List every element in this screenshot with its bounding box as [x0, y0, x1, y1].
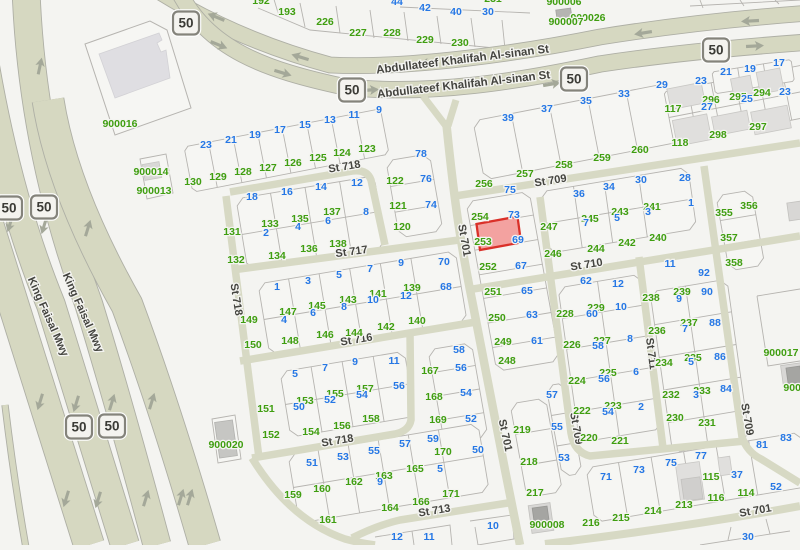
svg-text:30: 30 [482, 6, 494, 18]
svg-text:21: 21 [225, 134, 237, 146]
svg-text:900020: 900020 [208, 439, 243, 451]
svg-text:115: 115 [703, 471, 720, 483]
svg-text:50: 50 [566, 72, 581, 87]
svg-text:53: 53 [558, 452, 570, 464]
svg-text:21: 21 [720, 66, 732, 78]
svg-text:81: 81 [756, 439, 768, 451]
svg-text:16: 16 [281, 186, 293, 198]
svg-text:258: 258 [555, 159, 573, 171]
svg-text:150: 150 [244, 339, 262, 351]
svg-text:142: 142 [377, 321, 395, 333]
svg-text:6: 6 [633, 366, 639, 378]
svg-text:116: 116 [708, 492, 725, 504]
svg-text:217: 217 [526, 487, 544, 499]
svg-text:248: 248 [498, 355, 516, 367]
svg-text:58: 58 [453, 344, 465, 356]
svg-text:260: 260 [631, 144, 649, 156]
svg-text:3: 3 [645, 206, 651, 218]
svg-text:11: 11 [348, 109, 359, 121]
svg-text:77: 77 [695, 450, 707, 462]
svg-text:259: 259 [593, 152, 611, 164]
svg-text:62: 62 [580, 275, 592, 287]
svg-text:121: 121 [389, 200, 407, 212]
svg-text:12: 12 [351, 177, 363, 189]
svg-text:67: 67 [515, 260, 527, 272]
svg-text:238: 238 [642, 292, 660, 304]
svg-text:4: 4 [295, 221, 301, 233]
svg-text:120: 120 [393, 221, 411, 233]
svg-text:242: 242 [618, 237, 636, 249]
svg-text:74: 74 [425, 199, 437, 211]
svg-text:86: 86 [714, 351, 726, 363]
svg-text:55: 55 [551, 421, 563, 433]
svg-text:229: 229 [416, 34, 434, 46]
svg-text:50: 50 [104, 419, 119, 434]
svg-text:57: 57 [399, 438, 411, 450]
svg-text:10: 10 [615, 301, 627, 313]
svg-text:161: 161 [319, 514, 337, 526]
svg-text:130: 130 [184, 176, 202, 188]
svg-text:92: 92 [698, 267, 710, 279]
svg-text:39: 39 [502, 112, 514, 124]
svg-text:50: 50 [708, 43, 723, 58]
svg-text:7: 7 [322, 362, 328, 374]
svg-text:9: 9 [676, 293, 682, 305]
svg-text:128: 128 [234, 166, 252, 178]
svg-text:118: 118 [672, 137, 689, 149]
svg-text:19: 19 [744, 63, 756, 75]
svg-text:3: 3 [693, 389, 699, 401]
svg-text:252: 252 [479, 261, 497, 273]
svg-text:37: 37 [731, 469, 743, 481]
svg-text:230: 230 [451, 37, 469, 49]
svg-text:88: 88 [709, 317, 721, 329]
svg-text:75: 75 [665, 457, 677, 469]
svg-text:71: 71 [600, 471, 612, 483]
svg-text:356: 356 [740, 200, 758, 212]
svg-text:19: 19 [249, 129, 261, 141]
svg-text:253: 253 [474, 236, 492, 248]
svg-text:11: 11 [423, 531, 434, 543]
svg-text:126: 126 [284, 157, 302, 169]
svg-text:17: 17 [773, 57, 785, 69]
svg-text:166: 166 [412, 496, 430, 508]
svg-text:294: 294 [753, 87, 771, 99]
svg-text:8: 8 [341, 301, 347, 313]
svg-text:13: 13 [324, 114, 336, 126]
svg-text:254: 254 [471, 211, 489, 223]
svg-text:9: 9 [377, 476, 383, 488]
svg-text:52: 52 [324, 394, 336, 406]
svg-text:54: 54 [460, 387, 472, 399]
svg-text:232: 232 [662, 389, 680, 401]
svg-text:34: 34 [603, 181, 615, 193]
svg-text:90001: 90001 [783, 382, 800, 394]
svg-text:9: 9 [398, 257, 404, 269]
svg-text:33: 33 [618, 88, 630, 100]
svg-text:193: 193 [278, 6, 296, 18]
svg-text:124: 124 [333, 147, 351, 159]
svg-text:11: 11 [388, 355, 399, 367]
svg-text:164: 164 [381, 502, 399, 514]
svg-text:76: 76 [420, 173, 432, 185]
svg-text:69: 69 [512, 234, 524, 246]
svg-text:151: 151 [257, 403, 275, 415]
svg-text:56: 56 [393, 380, 405, 392]
svg-text:246: 246 [544, 248, 562, 260]
svg-text:122: 122 [386, 175, 404, 187]
svg-text:2: 2 [263, 227, 269, 239]
svg-text:234: 234 [655, 357, 673, 369]
svg-text:132: 132 [227, 254, 245, 266]
svg-text:6: 6 [325, 215, 331, 227]
svg-text:136: 136 [300, 243, 318, 255]
svg-text:154: 154 [302, 426, 320, 438]
svg-text:9: 9 [352, 356, 358, 368]
svg-text:129: 129 [209, 171, 227, 183]
svg-text:226: 226 [563, 339, 581, 351]
svg-text:355: 355 [715, 207, 733, 219]
svg-text:170: 170 [434, 446, 452, 458]
svg-text:226: 226 [316, 16, 334, 28]
svg-text:54: 54 [356, 389, 368, 401]
svg-text:215: 215 [612, 512, 630, 524]
svg-text:10: 10 [487, 520, 499, 532]
svg-text:1: 1 [688, 197, 694, 209]
svg-text:159: 159 [284, 489, 302, 501]
svg-text:56: 56 [455, 362, 467, 374]
svg-text:168: 168 [425, 391, 443, 403]
svg-text:236: 236 [648, 325, 666, 337]
svg-text:73: 73 [633, 464, 645, 476]
svg-text:900007: 900007 [548, 16, 583, 28]
svg-text:138: 138 [329, 238, 347, 250]
svg-text:40: 40 [450, 6, 462, 18]
svg-text:231: 231 [698, 417, 716, 429]
svg-text:221: 221 [611, 435, 629, 447]
svg-text:117: 117 [665, 103, 682, 115]
svg-text:256: 256 [475, 178, 493, 190]
svg-text:52: 52 [465, 413, 477, 425]
svg-text:36: 36 [573, 188, 585, 200]
svg-text:5: 5 [292, 368, 298, 380]
svg-text:56: 56 [598, 373, 610, 385]
svg-text:15: 15 [299, 119, 311, 131]
svg-text:222: 222 [573, 405, 591, 417]
svg-text:213: 213 [675, 499, 693, 511]
svg-text:900006: 900006 [546, 0, 581, 8]
svg-text:53: 53 [337, 451, 349, 463]
svg-text:224: 224 [568, 375, 586, 387]
svg-text:146: 146 [316, 329, 334, 341]
svg-text:60: 60 [586, 308, 598, 320]
svg-text:54: 54 [602, 406, 614, 418]
svg-text:230: 230 [666, 412, 684, 424]
svg-text:249: 249 [494, 336, 512, 348]
svg-text:218: 218 [520, 456, 538, 468]
svg-text:4: 4 [281, 314, 287, 326]
svg-text:11: 11 [664, 258, 675, 270]
svg-text:165: 165 [406, 463, 424, 475]
svg-text:5: 5 [336, 269, 342, 281]
svg-text:244: 244 [587, 243, 605, 255]
svg-text:51: 51 [306, 457, 318, 469]
svg-text:900014: 900014 [133, 166, 168, 178]
svg-text:900016: 900016 [102, 118, 137, 130]
svg-text:125: 125 [309, 152, 327, 164]
svg-text:61: 61 [531, 335, 543, 347]
svg-text:78: 78 [415, 148, 427, 160]
svg-text:7: 7 [682, 323, 688, 335]
svg-text:50: 50 [472, 444, 484, 456]
svg-text:63: 63 [526, 309, 538, 321]
svg-text:900008: 900008 [529, 519, 564, 531]
svg-text:23: 23 [779, 86, 791, 98]
svg-text:171: 171 [442, 488, 460, 500]
svg-text:114: 114 [738, 487, 755, 499]
svg-text:358: 358 [725, 257, 743, 269]
svg-text:298: 298 [709, 129, 727, 141]
svg-text:2: 2 [638, 401, 644, 413]
svg-text:35: 35 [580, 95, 592, 107]
svg-text:140: 140 [408, 315, 426, 327]
svg-text:219: 219 [513, 424, 531, 436]
svg-text:9: 9 [376, 104, 382, 116]
svg-text:8: 8 [363, 206, 369, 218]
svg-text:18: 18 [246, 191, 258, 203]
svg-text:297: 297 [749, 121, 767, 133]
svg-text:220: 220 [580, 432, 598, 444]
svg-text:7: 7 [583, 217, 589, 229]
svg-text:3: 3 [305, 275, 311, 287]
svg-text:23: 23 [200, 139, 212, 151]
svg-text:25: 25 [741, 93, 753, 105]
svg-text:12: 12 [391, 531, 403, 543]
svg-text:10: 10 [367, 294, 379, 306]
svg-text:50: 50 [293, 401, 305, 413]
svg-text:7: 7 [367, 263, 373, 275]
svg-text:131: 131 [223, 226, 241, 238]
svg-text:27: 27 [701, 101, 713, 113]
svg-text:214: 214 [644, 505, 662, 517]
svg-text:216: 216 [582, 517, 600, 529]
svg-text:75: 75 [504, 184, 516, 196]
svg-text:5: 5 [688, 356, 694, 368]
svg-text:156: 156 [333, 420, 351, 432]
svg-text:83: 83 [780, 432, 792, 444]
svg-text:231: 231 [484, 0, 502, 5]
svg-text:14: 14 [315, 181, 327, 193]
svg-text:144: 144 [345, 327, 363, 339]
svg-text:160: 160 [313, 483, 331, 495]
svg-text:228: 228 [556, 308, 574, 320]
svg-text:247: 247 [540, 221, 558, 233]
svg-text:59: 59 [427, 433, 439, 445]
svg-text:5: 5 [437, 463, 443, 475]
svg-text:70: 70 [438, 256, 450, 268]
svg-text:250: 250 [488, 312, 506, 324]
svg-text:84: 84 [720, 383, 732, 395]
svg-text:52: 52 [770, 481, 782, 493]
svg-text:152: 152 [262, 429, 280, 441]
svg-text:257: 257 [516, 168, 534, 180]
svg-text:357: 357 [720, 232, 738, 244]
svg-text:148: 148 [281, 335, 299, 347]
svg-text:58: 58 [592, 340, 604, 352]
svg-text:167: 167 [421, 365, 439, 377]
svg-text:30: 30 [635, 174, 647, 186]
svg-text:42: 42 [419, 2, 431, 14]
svg-text:149: 149 [240, 314, 258, 326]
svg-text:240: 240 [649, 232, 667, 244]
svg-text:123: 123 [358, 143, 376, 155]
svg-text:169: 169 [429, 414, 447, 426]
svg-text:50: 50 [1, 201, 16, 216]
svg-text:5: 5 [614, 212, 620, 224]
svg-text:30: 30 [742, 531, 754, 543]
svg-text:29: 29 [656, 79, 668, 91]
svg-text:17: 17 [274, 124, 286, 136]
svg-text:251: 251 [484, 286, 502, 298]
svg-text:228: 228 [383, 27, 401, 39]
svg-text:900017: 900017 [763, 347, 798, 359]
svg-text:50: 50 [71, 420, 86, 435]
svg-text:73: 73 [508, 209, 520, 221]
svg-text:900013: 900013 [136, 185, 171, 197]
svg-text:44: 44 [391, 0, 403, 8]
svg-text:50: 50 [36, 200, 51, 215]
svg-text:192: 192 [252, 0, 270, 7]
svg-text:65: 65 [521, 285, 533, 297]
svg-text:28: 28 [679, 172, 691, 184]
svg-text:1: 1 [274, 281, 280, 293]
svg-text:6: 6 [310, 307, 316, 319]
svg-text:50: 50 [178, 16, 193, 31]
svg-text:12: 12 [612, 278, 624, 290]
svg-text:68: 68 [440, 281, 452, 293]
svg-text:90: 90 [701, 286, 713, 298]
svg-text:37: 37 [541, 103, 553, 115]
svg-text:158: 158 [362, 413, 380, 425]
svg-text:57: 57 [546, 389, 558, 401]
svg-text:12: 12 [400, 290, 412, 302]
svg-text:162: 162 [345, 476, 363, 488]
svg-text:23: 23 [695, 75, 707, 87]
svg-text:227: 227 [349, 27, 367, 39]
svg-text:8: 8 [627, 333, 633, 345]
svg-text:127: 127 [259, 162, 277, 174]
svg-text:55: 55 [368, 445, 380, 457]
svg-text:50: 50 [344, 83, 359, 98]
svg-text:134: 134 [268, 250, 286, 262]
